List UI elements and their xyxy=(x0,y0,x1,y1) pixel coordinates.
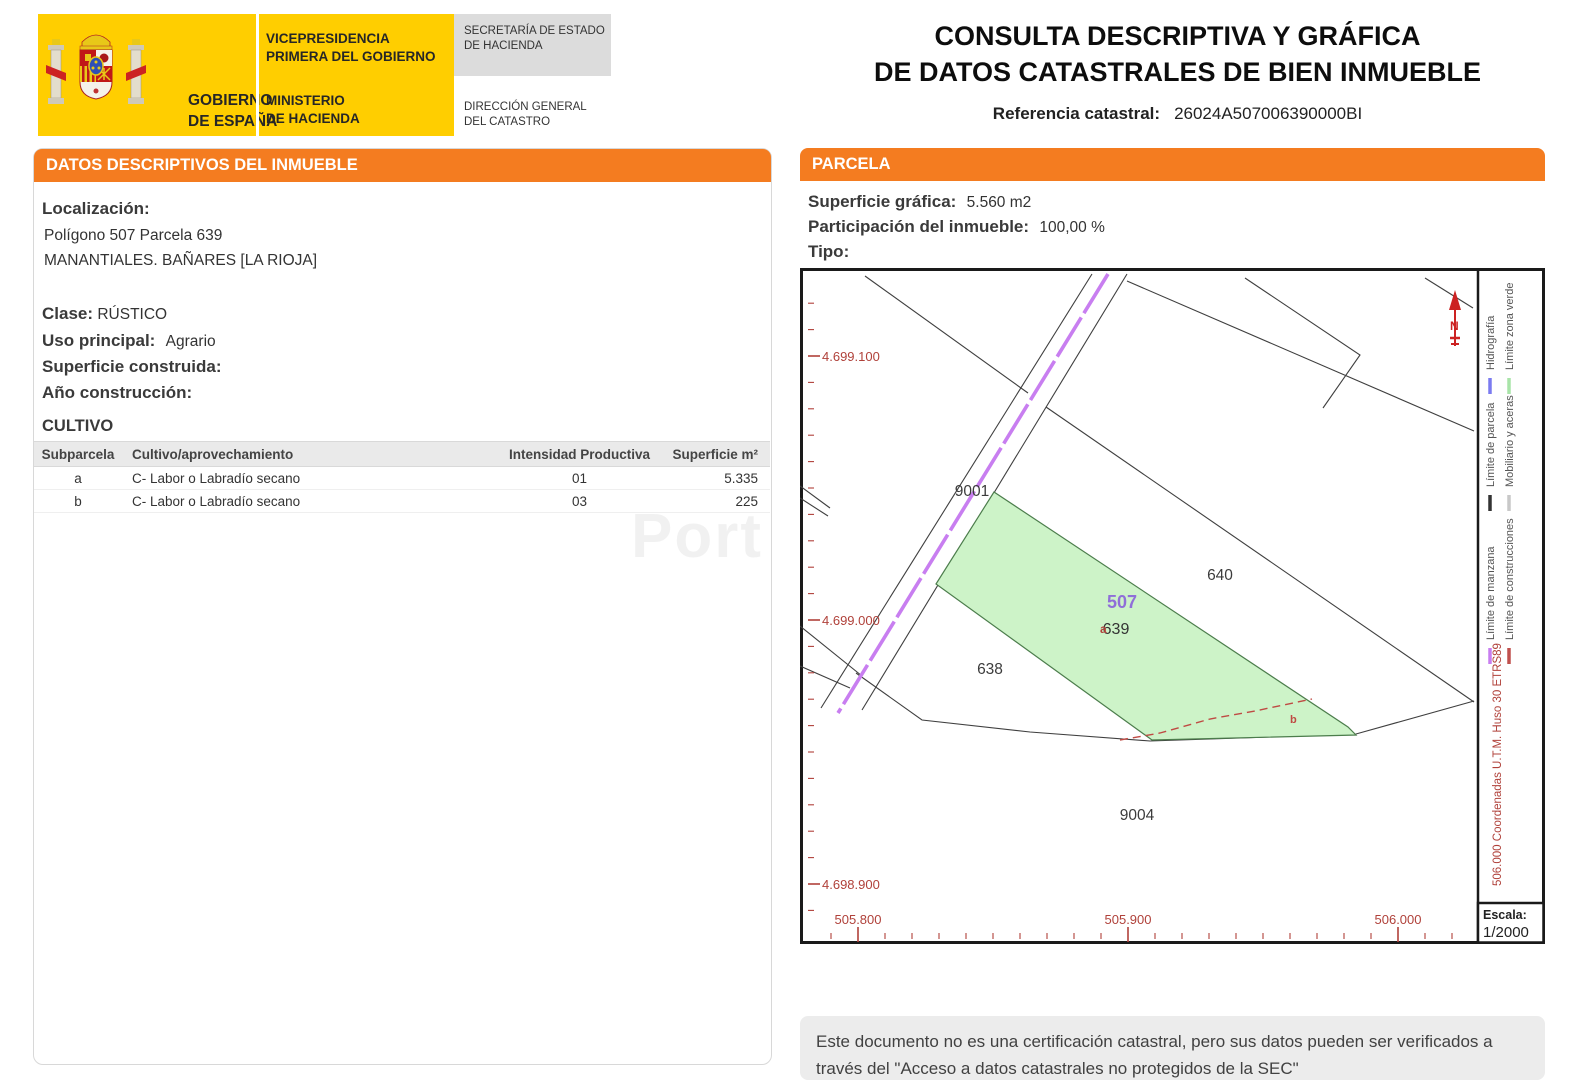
uso-value: Agrario xyxy=(166,333,216,350)
tipo-row: Tipo: xyxy=(808,242,849,262)
col-subparcela: Subparcela xyxy=(34,447,122,462)
cultivo-table-header: Subparcela Cultivo/aprovechamiento Inten… xyxy=(34,441,770,467)
superficie-grafica-label: Superficie gráfica: xyxy=(808,192,956,211)
uso-label: Uso principal: xyxy=(42,331,155,350)
referencia-value: 26024A507006390000BI xyxy=(1174,104,1362,123)
legal-notice-line1: Este documento no es una certificación c… xyxy=(816,1028,1545,1055)
legal-notice: Este documento no es una certificación c… xyxy=(800,1016,1545,1080)
col-superficie: Superficie m² xyxy=(667,447,770,462)
logo-divider xyxy=(256,14,259,136)
parcela-header: PARCELA xyxy=(800,148,1545,181)
cadastral-map-svg: N 9001 638 640 9004 507 639 a b 4.699.10… xyxy=(800,268,1545,944)
utm-caption: 506.000 Coordenadas U.T.M. Huso 30 ETRS8… xyxy=(1492,643,1504,886)
localizacion-line1: Polígono 507 Parcela 639 xyxy=(44,227,222,245)
legend-label: Límite de manzana xyxy=(1485,546,1497,640)
legend-label: Hidrografía xyxy=(1485,315,1497,370)
anio-construccion-row: Año construcción: xyxy=(42,383,192,403)
datos-descriptivos-panel: DATOS DESCRIPTIVOS DEL INMUEBLE Localiza… xyxy=(33,148,772,1065)
parcel-label-640: 640 xyxy=(1207,567,1233,584)
page-title: CONSULTA DESCRIPTIVA Y GRÁFICA DE DATOS … xyxy=(810,18,1545,90)
watermark: Port xyxy=(631,501,763,572)
col-intensidad: Intensidad Productiva xyxy=(492,447,667,462)
map-border xyxy=(802,270,1544,943)
superficie-construida-row: Superficie construida: xyxy=(42,357,221,377)
document-page: GOBIERNO DE ESPAÑA VICEPRESIDENCIA PRIME… xyxy=(0,0,1576,1080)
legend-label: Límite de construcciones xyxy=(1504,518,1516,640)
superficie-grafica-row: Superficie gráfica: 5.560 m2 xyxy=(808,192,1031,212)
col-cultivo: Cultivo/aprovechamiento xyxy=(122,447,492,462)
superficie-construida-label: Superficie construida: xyxy=(42,357,221,376)
participacion-row: Participación del inmueble: 100,00 % xyxy=(808,217,1105,237)
gobierno-de-espana-label: GOBIERNO DE ESPAÑA xyxy=(188,90,277,132)
cell-cultivo: C- Labor o Labradío secano xyxy=(122,494,492,509)
participacion-label: Participación del inmueble: xyxy=(808,217,1029,236)
secretaria-estado-box: SECRETARÍA DE ESTADO DE HACIENDA xyxy=(454,14,611,76)
x-axis-label-2: 505.900 xyxy=(1105,912,1152,927)
x-axis-label-3: 506.000 xyxy=(1375,912,1422,927)
escala-value: 1/2000 xyxy=(1483,924,1529,941)
north-label: N xyxy=(1450,319,1459,333)
participacion-value: 100,00 % xyxy=(1039,219,1105,236)
y-axis-label-3: 4.698.900 xyxy=(822,877,880,892)
table-row: a C- Labor o Labradío secano 01 5.335 xyxy=(34,467,770,490)
direccion-general-catastro-label: DIRECCIÓN GENERAL DEL CATASTRO xyxy=(464,100,587,130)
legend-label: Mobiliario y aceras xyxy=(1504,395,1516,487)
clase-row: Clase: RÚSTICO xyxy=(42,304,167,324)
tipo-label: Tipo: xyxy=(808,242,849,261)
subparcela-b-label: b xyxy=(1290,714,1297,726)
y-axis-label-2: 4.699.000 xyxy=(822,613,880,628)
referencia-label: Referencia catastral: xyxy=(993,104,1160,123)
cell-intensidad: 01 xyxy=(492,471,667,486)
subparcela-a-label: a xyxy=(1100,622,1107,636)
spain-coat-of-arms-icon xyxy=(46,25,146,125)
parcel-label-9004: 9004 xyxy=(1120,807,1155,824)
x-axis-label-1: 505.800 xyxy=(835,912,882,927)
cell-cultivo: C- Labor o Labradío secano xyxy=(122,471,492,486)
superficie-grafica-value: 5.560 m2 xyxy=(967,194,1032,211)
parcel-label-638: 638 xyxy=(977,661,1003,678)
localizacion-line2: MANANTIALES. BAÑARES [LA RIOJA] xyxy=(44,252,317,270)
referencia-catastral: Referencia catastral:26024A507006390000B… xyxy=(810,104,1545,124)
legend-label: Límite de parcela xyxy=(1485,402,1497,487)
legend-label: Límite zona verde xyxy=(1504,283,1516,370)
vicepresidencia-label: VICEPRESIDENCIA PRIMERA DEL GOBIERNO xyxy=(266,30,436,66)
y-axis-label-1: 4.699.100 xyxy=(822,349,880,364)
legal-notice-line2: través del "Acceso a datos catastrales n… xyxy=(816,1055,1545,1080)
sector-label-507: 507 xyxy=(1107,592,1137,612)
parcel-label-9001: 9001 xyxy=(955,483,989,500)
clase-value: RÚSTICO xyxy=(97,306,167,323)
escala-label: Escala: xyxy=(1483,908,1527,922)
cell-subparcela: b xyxy=(34,494,122,509)
cadastral-map: N 9001 638 640 9004 507 639 a b 4.699.10… xyxy=(800,268,1545,944)
ministerio-label: MINISTERIO DE HACIENDA xyxy=(266,92,360,128)
cell-superficie: 5.335 xyxy=(667,471,770,486)
uso-row: Uso principal: Agrario xyxy=(42,331,216,351)
cultivo-title: CULTIVO xyxy=(42,417,113,436)
datos-descriptivos-header: DATOS DESCRIPTIVOS DEL INMUEBLE xyxy=(34,149,771,182)
anio-construccion-label: Año construcción: xyxy=(42,383,192,402)
clase-label: Clase: xyxy=(42,304,93,323)
cell-subparcela: a xyxy=(34,471,122,486)
localizacion-label: Localización: xyxy=(42,199,150,219)
